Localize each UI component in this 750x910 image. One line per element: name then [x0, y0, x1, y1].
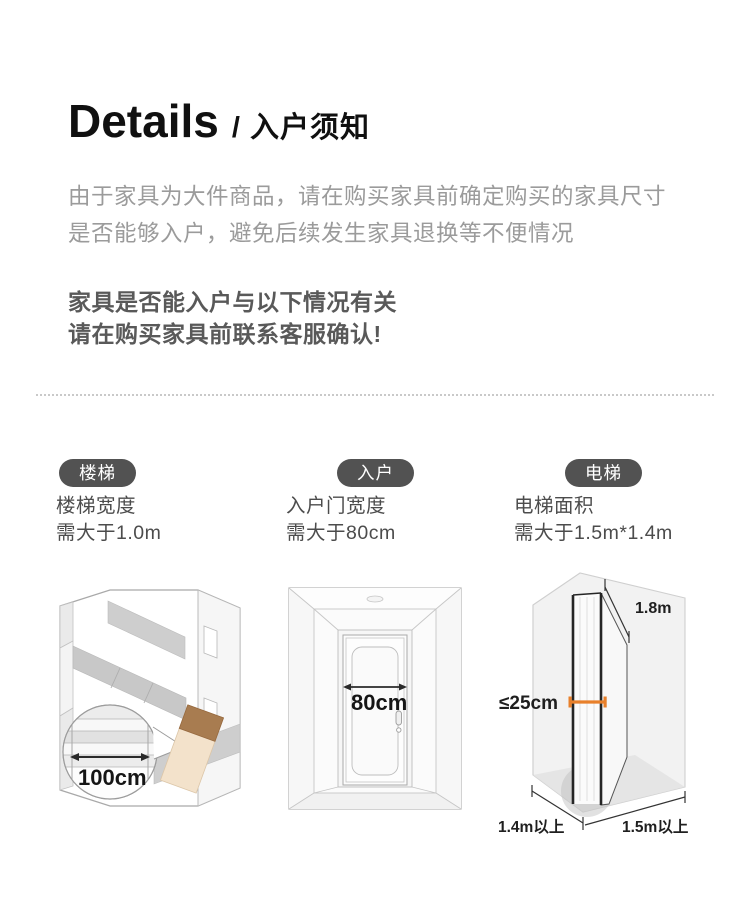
title-english: Details — [68, 94, 219, 148]
badge-elevator: 电梯 — [565, 459, 642, 487]
title-chinese: / 入户须知 — [232, 104, 370, 146]
intro-paragraph: 由于家具为大件商品，请在购买家具前确定购买的家具尺寸 是否能够入户，避免后续发生… — [68, 178, 666, 252]
elevator-desc-line-2: 需大于1.5m*1.4m — [514, 520, 673, 547]
door-handle — [396, 711, 402, 725]
elevator-illustration: ≤25cm 1.8m 1.4m以上 1.5m以上 — [495, 563, 713, 841]
stairs-desc-line-1: 楼梯宽度 — [56, 493, 161, 520]
door-illustration: 80cm — [288, 587, 462, 810]
entry-desc-line-2: 需大于80cm — [286, 520, 396, 547]
stairs-description: 楼梯宽度 需大于1.0m — [56, 493, 161, 546]
notice-line-1: 家具是否能入户与以下情况有关 — [68, 286, 397, 318]
depth-label: 1.4m以上 — [498, 818, 565, 836]
ceiling-light — [367, 596, 383, 602]
dashed-divider — [36, 394, 714, 396]
thickness-label: ≤25cm — [499, 693, 558, 714]
notice-line-2: 请在购买家具前联系客服确认! — [68, 318, 397, 350]
intro-line-2: 是否能够入户，避免后续发生家具退换等不便情况 — [68, 215, 666, 252]
entry-description: 入户门宽度 需大于80cm — [286, 493, 396, 546]
intro-line-1: 由于家具为大件商品，请在购买家具前确定购买的家具尺寸 — [68, 178, 666, 215]
badge-stairs: 楼梯 — [59, 459, 136, 487]
entry-notice-section: Details / 入户须知 由于家具为大件商品，请在购买家具前确定购买的家具尺… — [0, 0, 750, 910]
elevator-description: 电梯面积 需大于1.5m*1.4m — [514, 493, 673, 546]
stairs-desc-line-2: 需大于1.0m — [56, 520, 161, 547]
stairs-measurement-label: 100cm — [78, 765, 147, 790]
notice-paragraph: 家具是否能入户与以下情况有关 请在购买家具前联系客服确认! — [68, 286, 397, 350]
entry-desc-line-1: 入户门宽度 — [286, 493, 396, 520]
section-title: Details / 入户须知 — [68, 94, 370, 148]
stairs-illustration: 100cm — [58, 586, 242, 810]
elevator-desc-line-1: 电梯面积 — [514, 493, 673, 520]
width-label: 1.5m以上 — [622, 818, 689, 836]
height-label: 1.8m — [635, 600, 671, 617]
badge-entry: 入户 — [337, 459, 414, 487]
